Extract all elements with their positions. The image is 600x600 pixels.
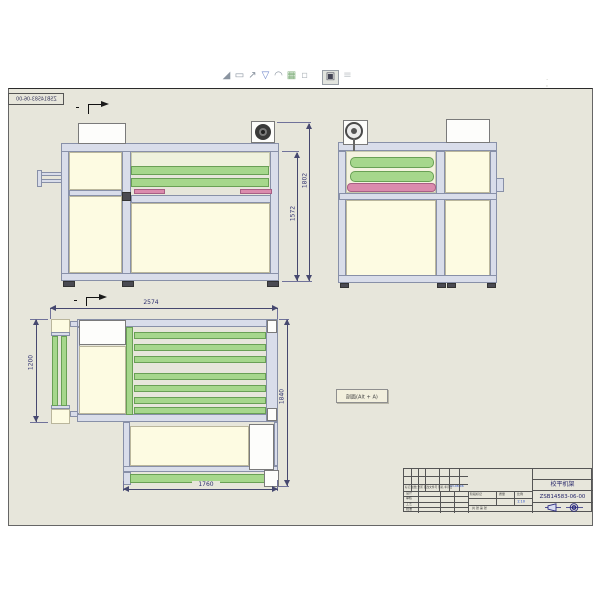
front-roller-area: [131, 152, 270, 167]
front-infeed-bar: [41, 179, 62, 183]
top-roller: [134, 356, 266, 363]
table-icon[interactable]: ▦: [285, 69, 298, 82]
dim-arrow-icon: [284, 319, 290, 325]
dim-arrow-icon: [284, 480, 290, 486]
dim-arrow-icon: [33, 319, 39, 325]
dim-arrow-icon: [33, 416, 39, 422]
side-pinch-roller: [347, 183, 436, 192]
title-block: 校平机架 ZSB14583-06-00 标记 处数 分区 更改文件号 签名 年月…: [403, 468, 592, 512]
sign-row-label: 设计: [406, 492, 412, 495]
pulley-hub: [351, 128, 357, 134]
front-drive-block: [122, 192, 131, 201]
section-arrowhead-icon: [99, 294, 107, 300]
tb-line: [454, 491, 455, 513]
front-pad-right: [240, 189, 272, 194]
ext-line: [282, 281, 312, 282]
side-top-cabinet: [446, 119, 490, 143]
front-roller: [131, 178, 269, 187]
sign-row-label: 批准: [406, 508, 412, 511]
cad-window: ◢ ▭ ↗ ▽ ◠ ▦ ▫ ▣ ≡ · ' | , ZSB14583-06-00: [0, 0, 600, 600]
front-mid-column: [122, 151, 131, 277]
fan-center: [261, 130, 265, 134]
sheets-note: 共 张 第 张: [472, 507, 487, 510]
dim-arrow-icon: [294, 152, 300, 158]
conveyor-roller: [52, 336, 58, 406]
dim-arrow-icon: [294, 275, 300, 281]
tb-line: [440, 491, 441, 513]
front-main-panel: [131, 203, 270, 273]
section-tick: [76, 107, 79, 108]
section-arrow-leg: [86, 297, 87, 306]
outfeed-panel: [130, 426, 249, 466]
front-foot: [267, 281, 279, 287]
top-roller: [134, 344, 266, 351]
active-tool-icon[interactable]: ▣: [322, 70, 339, 85]
top-left-panel: [79, 346, 126, 414]
front-table-beam: [131, 195, 271, 203]
side-foot: [340, 283, 349, 288]
front-right-column: [270, 151, 279, 277]
front-top-cabinet: [78, 123, 126, 144]
arc-icon[interactable]: ◠: [272, 69, 285, 82]
mid-header: 质量: [499, 493, 505, 496]
side-right-column: [490, 151, 497, 283]
dim-arrow-icon: [123, 486, 129, 492]
top-corner-plate: [267, 408, 277, 421]
mid-header: 阶段标记: [470, 493, 482, 496]
front-left-lower-panel: [69, 196, 122, 273]
tb-line: [404, 502, 468, 503]
front-foot: [122, 281, 134, 287]
dim-line-1572: [297, 153, 298, 281]
tb-line: [404, 507, 468, 508]
conveyor-roller: [61, 336, 67, 406]
side-foot: [447, 283, 456, 288]
side-right-upper-panel: [445, 151, 490, 193]
tb-line: [418, 491, 419, 513]
leader-icon[interactable]: ↗: [246, 69, 259, 82]
dim-line-1802: [309, 124, 310, 281]
side-inner-column: [436, 151, 445, 283]
tb-line: [404, 496, 468, 497]
revision-entry: 13-08-06: [450, 485, 464, 488]
side-roller: [350, 171, 434, 182]
projection-symbol-icon: [544, 503, 584, 512]
side-mount-tab: [496, 178, 504, 192]
front-left-upper-panel: [69, 152, 122, 190]
dim-text-front-inner-height: 1572: [290, 201, 297, 227]
sketch-segment-icon[interactable]: ◢: [220, 69, 233, 82]
dim-text-front-outer-height: 1802: [302, 168, 309, 194]
front-pad-left: [134, 189, 165, 194]
top-roller: [134, 407, 266, 414]
side-foot: [487, 283, 496, 288]
dim-text-top-bottom-width: 1760: [192, 481, 220, 488]
top-roller: [134, 385, 266, 392]
dim-line-1760: [123, 489, 278, 490]
note-icon[interactable]: ▭: [233, 69, 246, 82]
dim-arrow-icon: [272, 486, 278, 492]
dim-arrow-icon: [306, 123, 312, 129]
part-name: 校平机架: [532, 480, 593, 489]
front-infeed-bar: [41, 172, 62, 176]
ext-line: [50, 309, 51, 319]
section-tooltip: 剖面(Alt + A): [336, 389, 388, 403]
tb-line: [468, 491, 469, 513]
top-roller: [134, 332, 266, 339]
tb-line: [532, 469, 533, 513]
dim-text-top-depth-left: 1200: [28, 350, 35, 376]
side-foot: [437, 283, 446, 288]
top-right-column: [266, 319, 278, 422]
mirrored-doc-number-text: ZSB14583-06-00: [16, 96, 57, 102]
ext-line: [277, 309, 278, 319]
dim-text-top-depth-right: 1840: [279, 384, 286, 410]
outfeed-cabinet: [249, 424, 274, 470]
top-roller: [134, 397, 266, 404]
symbol-icon[interactable]: ▫: [298, 69, 311, 82]
front-top-beam: [61, 143, 279, 152]
datum-icon[interactable]: ▽: [259, 69, 272, 82]
scale-value: 1:10: [517, 500, 525, 504]
ext-line: [279, 486, 289, 487]
more-tools-icon[interactable]: ≡: [341, 69, 354, 82]
top-frame-beam: [77, 414, 278, 422]
section-arrow-line: [86, 297, 99, 298]
revision-header: 标记 处数 分区 更改文件号 签名 年月日: [405, 486, 452, 489]
tb-line: [532, 490, 593, 491]
dim-line-1200: [36, 320, 37, 422]
side-lower-panel: [346, 200, 436, 276]
ext-line: [30, 422, 48, 423]
dim-line-1840: [287, 320, 288, 486]
mirrored-doc-number-note[interactable]: ZSB14583-06-00: [8, 93, 64, 105]
side-table-beam: [339, 193, 497, 200]
mid-header: 比例: [517, 493, 523, 496]
section-arrowhead-icon: [101, 101, 109, 107]
front-bottom-beam: [61, 273, 279, 281]
side-left-column: [338, 151, 346, 283]
dim-arrow-icon: [306, 275, 312, 281]
section-tooltip-text: 剖面(Alt + A): [346, 392, 378, 400]
section-tick: [74, 300, 77, 301]
sign-row-label: 工艺: [406, 503, 412, 506]
side-bottom-rail: [338, 275, 497, 283]
section-arrow-line: [88, 104, 101, 105]
drawing-number: ZSB14583-06-00: [535, 492, 590, 500]
top-cross-roller: [126, 327, 133, 415]
conveyor-end-block: [51, 409, 70, 424]
side-right-lower-panel: [445, 200, 490, 276]
top-cabinet: [79, 320, 126, 345]
front-left-column: [61, 151, 69, 277]
belt-line: [353, 138, 355, 152]
top-corner-plate: [267, 320, 277, 333]
section-arrow-leg: [88, 104, 89, 114]
side-roller: [350, 157, 434, 168]
sign-row-label: 审核: [406, 497, 412, 500]
outfeed-right-edge: [274, 422, 278, 466]
dim-line-2574: [50, 308, 278, 309]
front-roller: [131, 166, 269, 175]
outfeed-left-rail: [123, 422, 130, 472]
dim-text-top-width: 2574: [137, 299, 165, 306]
top-roller: [134, 373, 266, 380]
front-foot: [63, 281, 75, 287]
